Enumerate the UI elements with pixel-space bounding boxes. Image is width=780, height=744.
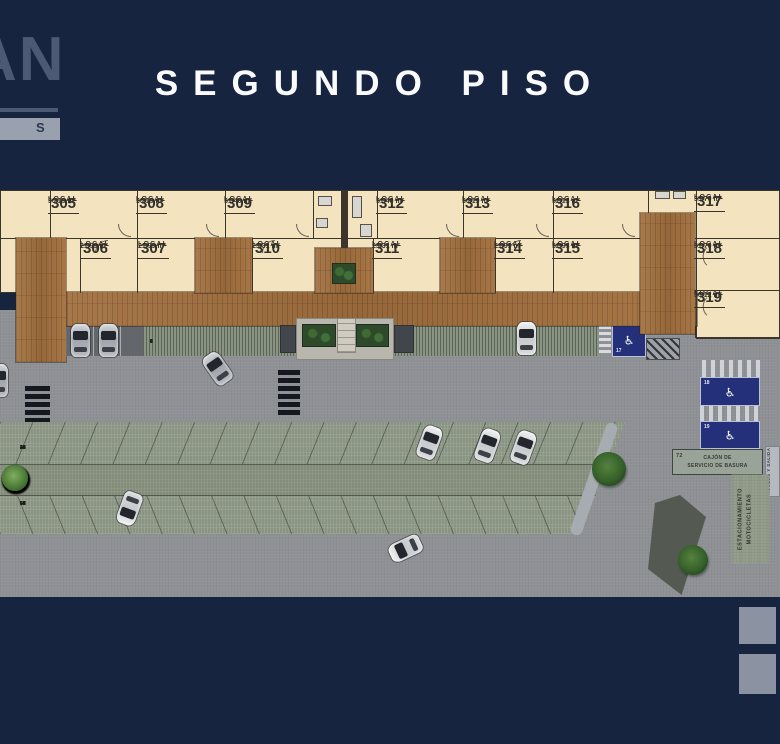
- service-stall-label: CAJÓN DE: [703, 455, 731, 461]
- desk-fixture: [316, 218, 328, 228]
- stall-number: 71: [20, 501, 26, 507]
- entrance-planter: [356, 324, 389, 347]
- desk-fixture: [318, 196, 332, 206]
- cutoff-panel: [739, 654, 776, 694]
- handicap-stall-18: 18 ♿: [700, 377, 760, 406]
- stall-number: 45: [20, 445, 26, 451]
- parking-island: 282930313233343536373839404142434445 545…: [0, 422, 648, 534]
- handicap-stall-19: 19 ♿: [700, 421, 760, 449]
- stall-number: 9: [150, 339, 153, 345]
- moto-label: MOTOCICLETAS: [746, 494, 752, 545]
- bath-fixture: [655, 191, 670, 199]
- crosswalk-right-b: [700, 406, 760, 421]
- car: [71, 324, 90, 357]
- stall-number: 72: [676, 452, 683, 460]
- bath-fixture: [352, 196, 362, 218]
- service-stall-label: SERVICIO DE BASURA: [687, 463, 747, 469]
- island-stall-numbers-bottom: 545556575859606162636465666768697071: [20, 500, 590, 508]
- entrance-planter: [302, 324, 336, 347]
- brand-logo-bar: [0, 118, 60, 140]
- palm-tree-icon: [592, 452, 626, 486]
- crosswalk-right-a: [702, 360, 760, 377]
- palm-tree-icon: [678, 545, 708, 575]
- brand-logo: AN S: [0, 30, 64, 150]
- motorcycle-parking: ESTACIONAMIENTO MOTOCICLETAS: [732, 475, 770, 564]
- wood-corridor-right: [640, 213, 695, 334]
- bath-fixture: [673, 191, 686, 199]
- wall: [696, 338, 780, 339]
- island-stall-lines-top: [0, 422, 648, 464]
- wood-block-b: [440, 238, 495, 293]
- stall-numbers-right: 10111213141516: [400, 337, 590, 347]
- bottom-band: [0, 597, 780, 744]
- tree-row: [2, 460, 602, 496]
- entrance-mat: [394, 325, 414, 353]
- core-wall: [341, 190, 348, 248]
- wheelchair-icon: ♿: [701, 385, 759, 399]
- mini-crosswalk: [599, 326, 611, 355]
- crosswalk-center: [278, 370, 300, 417]
- deck-planter: [332, 263, 356, 284]
- brand-logo-text: AN: [0, 30, 64, 95]
- floor-plan-canvas: AN S SEGUNDO PISO 3456789 10111213141516…: [0, 0, 780, 744]
- car: [517, 322, 536, 355]
- stall-number: 17: [616, 348, 622, 354]
- brand-logo-rule: [0, 108, 58, 112]
- entrance-stair: [337, 318, 356, 353]
- wall: [696, 190, 697, 338]
- entrance-mat: [280, 325, 296, 353]
- brand-logo-subtext: S: [36, 120, 45, 135]
- wheelchair-icon: ♿: [701, 429, 759, 443]
- car: [99, 324, 118, 357]
- moto-label: ESTACIONAMIENTO: [738, 488, 744, 550]
- wall: [648, 190, 649, 213]
- page-title: SEGUNDO PISO: [70, 64, 690, 104]
- stall-numbers-left: 3456789: [150, 337, 292, 347]
- wood-block-left: [16, 238, 66, 362]
- wood-block-a: [195, 238, 252, 293]
- palm-tree-icon: [2, 465, 28, 491]
- motorcycle-parking-label: ESTACIONAMIENTO MOTOCICLETAS: [732, 475, 770, 564]
- bath-fixture: [360, 224, 372, 237]
- car: [0, 364, 8, 397]
- wheelchair-icon: ♿: [613, 334, 645, 348]
- wall: [313, 190, 314, 238]
- cutoff-panel: [739, 607, 776, 644]
- garbage-service-stall: 72 CAJÓN DE SERVICIO DE BASURA: [672, 449, 763, 475]
- ramp-hatch: [646, 338, 680, 360]
